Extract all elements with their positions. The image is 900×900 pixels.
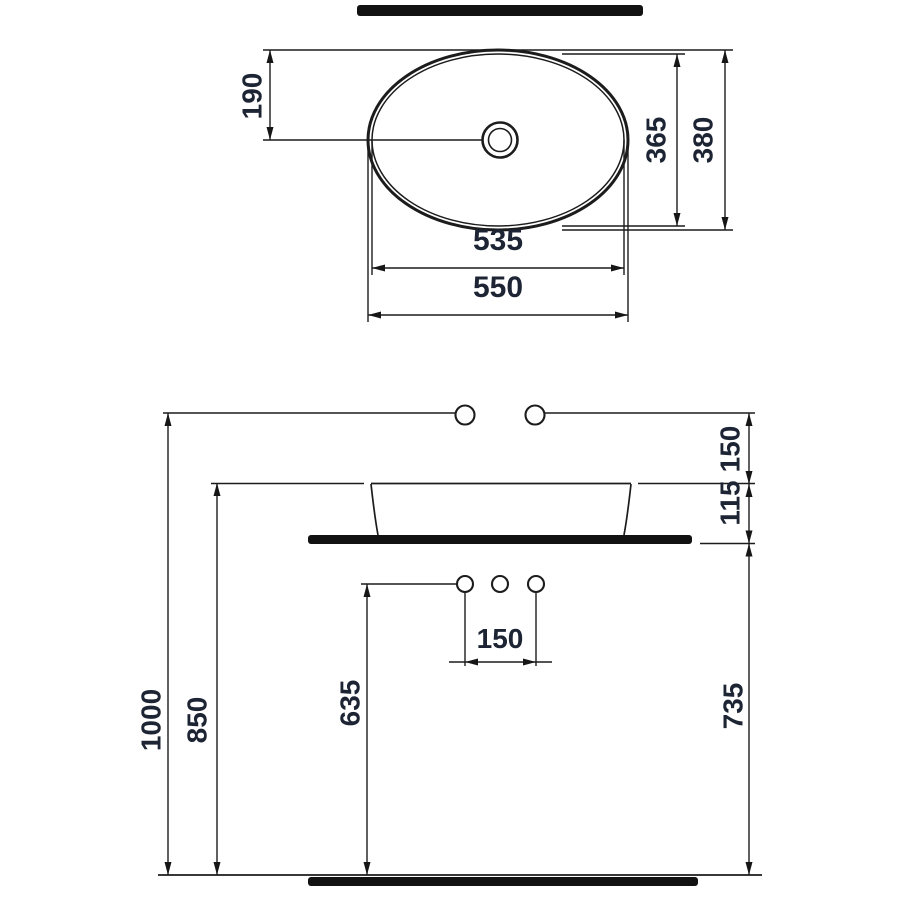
arrowhead-up [722, 50, 729, 63]
dim-label-supply-holes-height: 635 [335, 680, 366, 727]
dim-label-outer-width: 550 [473, 271, 523, 304]
arrowhead-up [674, 54, 681, 67]
dim-label-rim-above-counter: 115 [715, 480, 746, 525]
dim-label-total-height: 1000 [136, 689, 167, 751]
dim-label-counter-underside-height: 735 [718, 683, 749, 730]
dim-label-inner-depth: 365 [641, 117, 672, 164]
arrowhead-up [165, 413, 172, 426]
arrowhead-up [364, 584, 371, 597]
dim-label-tap-offset: 190 [237, 73, 268, 120]
dim-label-inner-width: 535 [473, 224, 523, 257]
arrowhead-up [267, 50, 274, 63]
arrowhead-down [364, 862, 371, 875]
basin-technical-drawing: 190 365 380 535 550 [0, 0, 900, 900]
arrowhead-right [611, 265, 624, 272]
arrowhead-right [523, 659, 536, 666]
arrowhead-up [746, 544, 753, 557]
arrowhead-down [722, 217, 729, 230]
arrowhead-left [372, 265, 385, 272]
arrowhead-up [746, 484, 753, 497]
dim-label-rim-height: 850 [182, 697, 213, 744]
drawing-canvas: 190 365 380 535 550 [0, 0, 900, 900]
wall-fixture-hole-right [526, 406, 545, 425]
arrowhead-up [746, 413, 753, 426]
arrowhead-down [165, 862, 172, 875]
wall-fixture-hole-left [456, 406, 475, 425]
dim-label-outer-depth: 380 [688, 117, 719, 164]
dim-label-hole-spacing: 150 [477, 623, 524, 654]
arrowhead-left [368, 312, 381, 319]
basin-right-wall [624, 484, 631, 535]
dim-label-fixture-above-rim: 150 [715, 426, 746, 473]
wall-section-bar [357, 5, 643, 16]
arrowhead-down [674, 213, 681, 226]
arrowhead-down [214, 862, 221, 875]
supply-hole-left [457, 576, 473, 592]
front-view: 150 1000 850 635 150 115 735 [136, 406, 763, 887]
arrowhead-down [746, 862, 753, 875]
arrowhead-down [267, 127, 274, 140]
floor-section-bar [308, 877, 698, 886]
arrowhead-up [214, 483, 221, 496]
supply-hole-center [492, 576, 508, 592]
supply-hole-right [528, 576, 544, 592]
basin-left-wall [371, 484, 378, 535]
arrowhead-left [465, 659, 478, 666]
arrowhead-down [746, 471, 753, 484]
arrowhead-down [746, 531, 753, 544]
arrowhead-right [615, 312, 628, 319]
tap-hole-inner [489, 129, 512, 152]
plan-view: 190 365 380 535 550 [237, 5, 734, 322]
countertop-bar [308, 535, 692, 544]
